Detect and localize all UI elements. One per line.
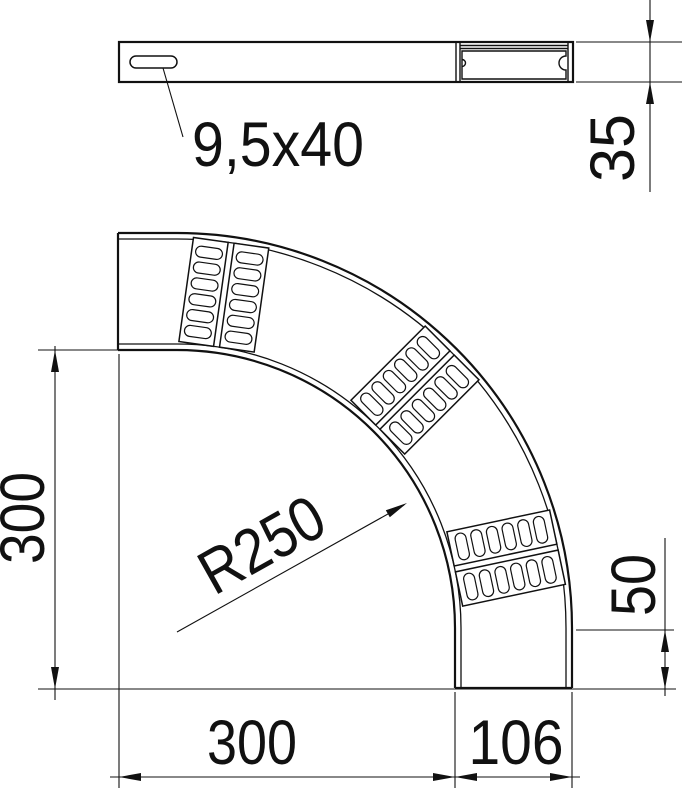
bottom-dim-label: 300 (207, 708, 297, 778)
profile-height-dim-label: 35 (578, 114, 648, 182)
rung-pair (447, 510, 566, 606)
side-dimension: 300 (0, 346, 676, 700)
dim-arrow (646, 20, 654, 42)
width-dim-label: 106 (469, 708, 564, 778)
technical-drawing-canvas: 9,5x40 35 R250 (0, 0, 682, 794)
radius-dim-label: R250 (187, 482, 337, 608)
dim-arrow (51, 350, 59, 372)
profile-height-dimension: 35 (576, 0, 682, 192)
bend-view: R250 300 300 106 (0, 233, 676, 788)
dim-arrow (119, 773, 141, 781)
slot-size-label: 9,5x40 (192, 110, 364, 180)
ladder-bend-drawing: 9,5x40 35 R250 (0, 0, 682, 794)
tangent-dim-label: 50 (599, 554, 669, 616)
top-view: 9,5x40 35 (119, 0, 682, 192)
dim-arrow (661, 630, 669, 652)
fixing-slot (130, 56, 177, 68)
radius-dimension: R250 (177, 482, 407, 632)
dim-arrow (433, 773, 455, 781)
rung-pair (351, 326, 479, 454)
side-dim-label: 300 (0, 472, 58, 564)
dim-arrow (386, 503, 407, 517)
rung-pair (179, 237, 269, 352)
dim-arrow (51, 667, 59, 689)
tangent-dimension: 50 (576, 538, 674, 696)
dim-arrow (661, 667, 669, 689)
dim-arrow (646, 82, 654, 104)
